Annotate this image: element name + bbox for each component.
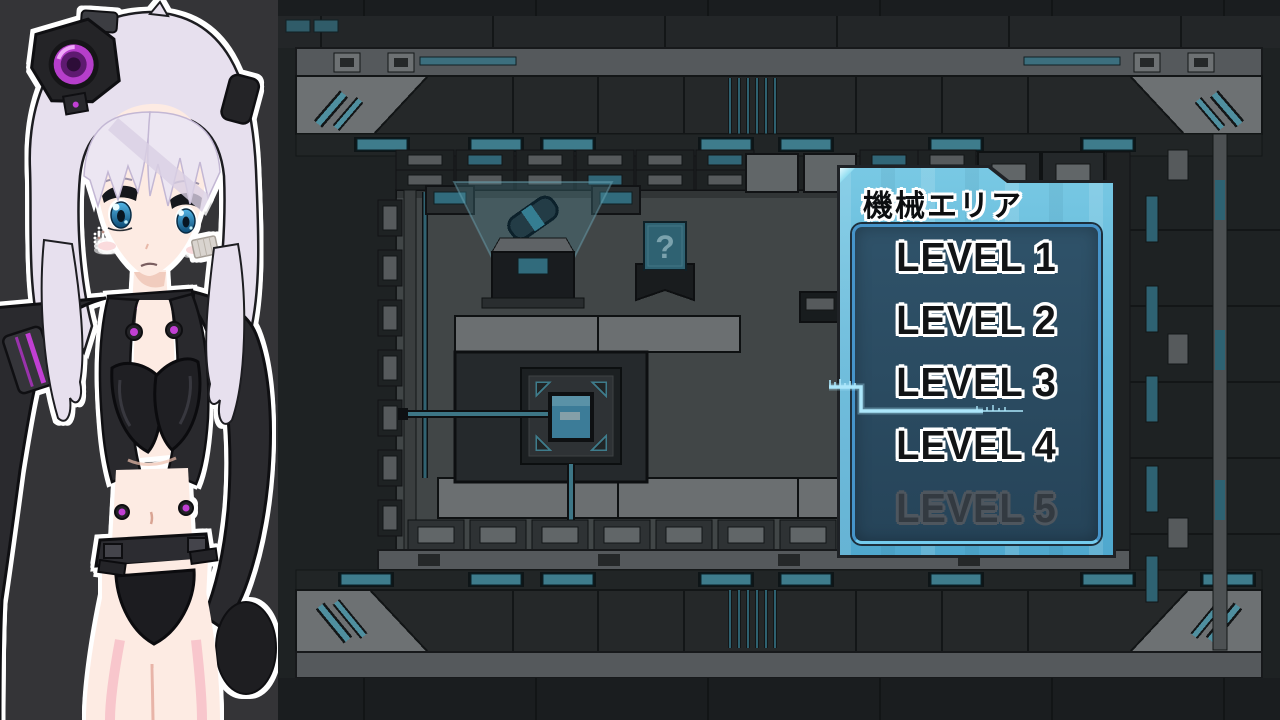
selection-cursor	[827, 377, 1037, 423]
area-map: ?	[278, 0, 1280, 720]
area-title: 機械エリア	[863, 181, 1023, 225]
level-option-4[interactable]: LEVEL 4	[855, 415, 1098, 478]
glove	[216, 602, 276, 694]
level-option-2[interactable]: LEVEL 2	[855, 290, 1098, 353]
level-option-5[interactable]: LEVEL 5	[855, 478, 1098, 541]
character-portrait	[0, 0, 278, 720]
level-select-panel: 機械エリア LEVEL 1 LEVEL 2 LEVEL 3 LEVEL 4 LE…	[837, 165, 1116, 558]
level-option-1[interactable]: LEVEL 1	[855, 227, 1098, 290]
level-select-screen: ?	[0, 0, 1280, 720]
